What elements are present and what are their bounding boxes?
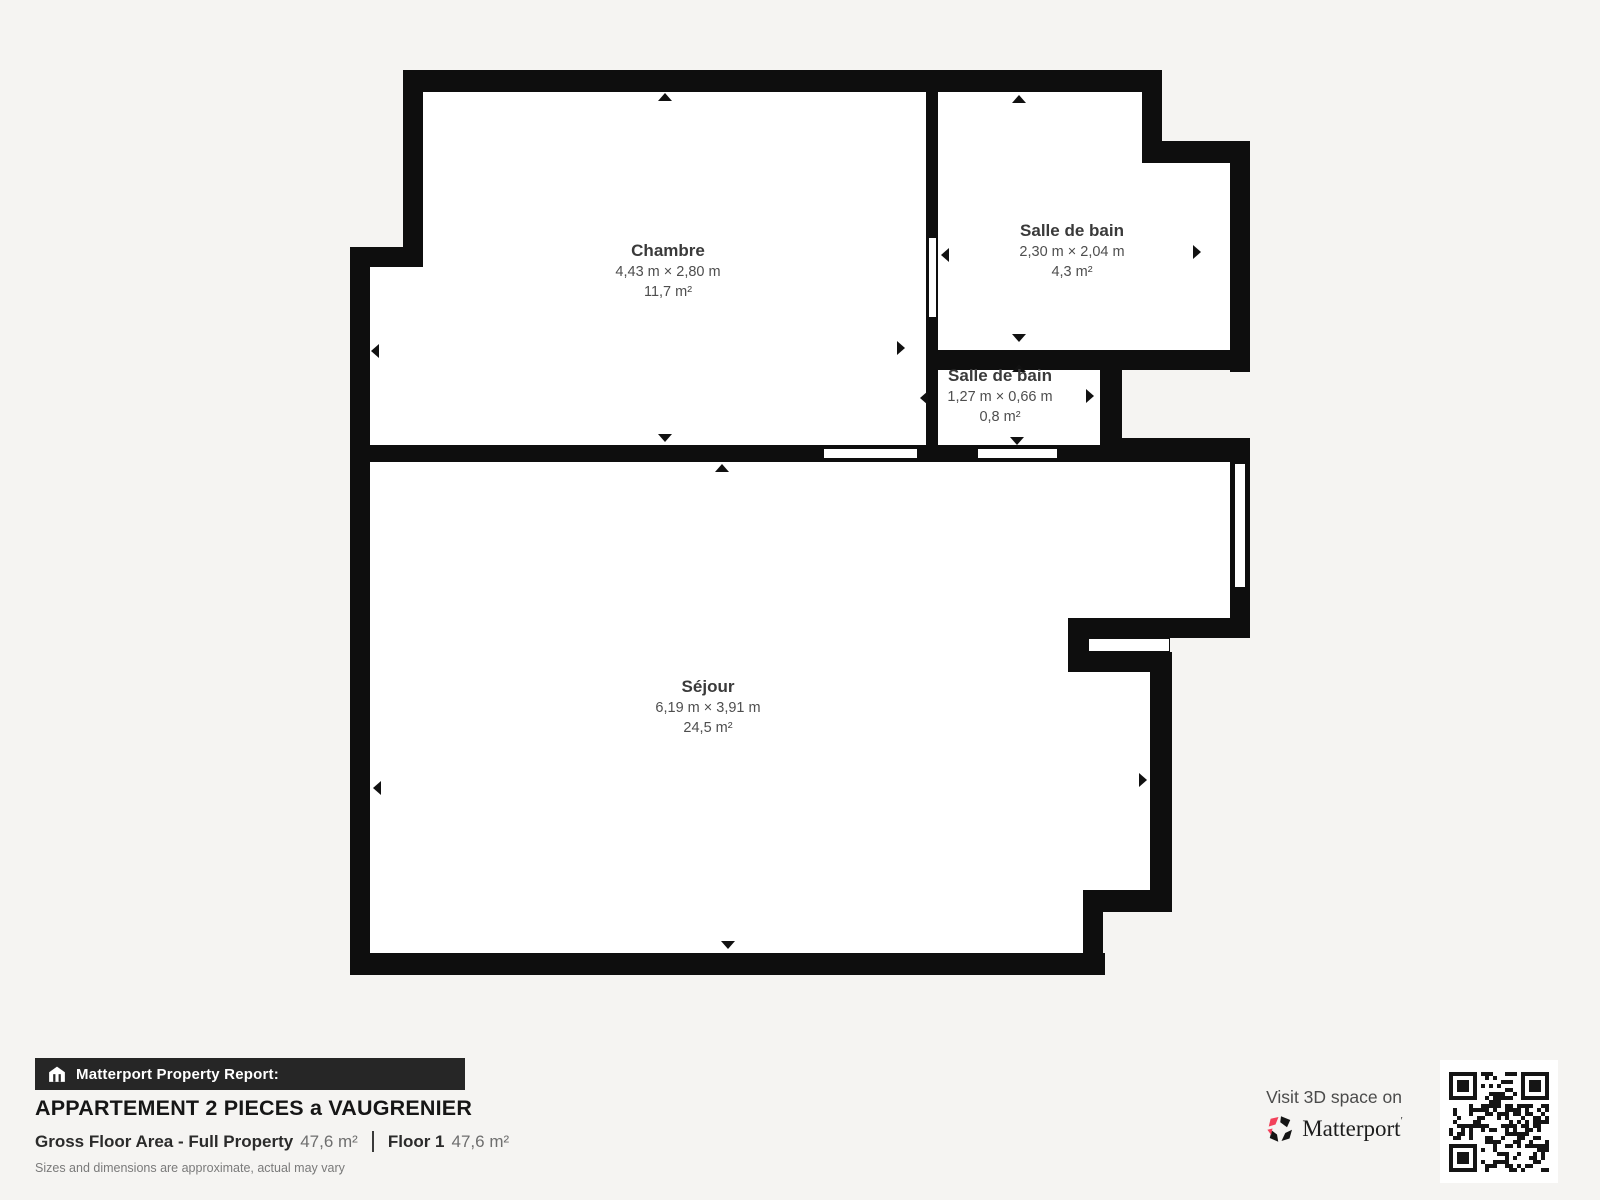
room-label-sejour: Séjour 6,19 m × 3,91 m 24,5 m²	[558, 676, 858, 738]
wall-segment	[1150, 652, 1172, 892]
qr-code	[1440, 1060, 1558, 1183]
divider	[372, 1131, 374, 1152]
wall-segment	[1230, 141, 1250, 372]
wall-arrow-icon	[373, 781, 381, 795]
room-dimensions: 1,27 m × 0,66 m	[915, 387, 1085, 407]
visit-3d-link[interactable]: Visit 3D space on Matterportʹ	[1248, 1086, 1420, 1144]
wall-arrow-icon	[371, 344, 379, 358]
wall-arrow-icon	[1086, 389, 1094, 403]
room-name: Salle de bain	[915, 365, 1085, 387]
page-title: APPARTEMENT 2 PIECES a VAUGRENIER	[35, 1096, 472, 1121]
wall-segment	[1083, 890, 1103, 975]
room-fill	[1083, 462, 1150, 890]
room-dimensions: 2,30 m × 2,04 m	[947, 242, 1197, 262]
room-area: 4,3 m²	[947, 262, 1197, 282]
wall-arrow-icon	[897, 341, 905, 355]
wall-segment	[1100, 438, 1250, 462]
wall-arrow-icon	[721, 941, 735, 949]
wall-arrow-icon	[658, 93, 672, 101]
wall-arrow-icon	[658, 434, 672, 442]
wall-arrow-icon	[1012, 334, 1026, 342]
room-label-salle-de-bain-1: Salle de bain 2,30 m × 2,04 m 4,3 m²	[947, 220, 1197, 282]
floor-value: 47,6 m²	[452, 1132, 510, 1152]
report-banner: Matterport Property Report:	[35, 1058, 465, 1090]
room-area: 11,7 m²	[518, 282, 818, 302]
disclaimer-text: Sizes and dimensions are approximate, ac…	[35, 1161, 345, 1175]
area-info-row: Gross Floor Area - Full Property 47,6 m²…	[35, 1131, 509, 1152]
room-label-chambre: Chambre 4,43 m × 2,80 m 11,7 m²	[518, 240, 818, 302]
floor-plan: Chambre 4,43 m × 2,80 m 11,7 m² Salle de…	[0, 0, 1600, 1200]
wall-arrow-icon	[1139, 773, 1147, 787]
wall-segment	[350, 247, 370, 975]
window	[1088, 638, 1170, 652]
room-name: Chambre	[518, 240, 818, 262]
matterport-logo-icon	[1265, 1114, 1295, 1144]
room-name: Salle de bain	[947, 220, 1197, 242]
room-dimensions: 6,19 m × 3,91 m	[558, 698, 858, 718]
house-icon	[48, 1066, 66, 1083]
wall-arrow-icon	[715, 464, 729, 472]
banner-label: Matterport Property Report:	[76, 1066, 279, 1083]
room-dimensions: 4,43 m × 2,80 m	[518, 262, 818, 282]
wall-segment	[403, 70, 1162, 92]
gross-floor-area-label: Gross Floor Area - Full Property	[35, 1132, 293, 1152]
wall-arrow-icon	[1012, 95, 1026, 103]
room-label-salle-de-bain-2: Salle de bain 1,27 m × 0,66 m 0,8 m²	[915, 365, 1085, 427]
room-fill	[1150, 460, 1230, 618]
window	[1234, 463, 1246, 588]
visit-text: Visit 3D space on	[1248, 1086, 1420, 1108]
room-area: 24,5 m²	[558, 718, 858, 738]
door-opening	[977, 448, 1058, 459]
room-area: 0,8 m²	[915, 407, 1085, 427]
trademark-tick: ʹ	[1401, 1116, 1403, 1127]
wall-segment	[1068, 618, 1250, 638]
room-name: Séjour	[558, 676, 858, 698]
wall-segment	[350, 953, 1105, 975]
wall-segment	[403, 70, 423, 267]
door-opening	[928, 237, 937, 318]
floor-label: Floor 1	[388, 1132, 445, 1152]
gross-floor-area-value: 47,6 m²	[300, 1132, 358, 1152]
wall-arrow-icon	[1010, 437, 1024, 445]
matterport-wordmark: Matterportʹ	[1302, 1116, 1403, 1142]
door-opening	[823, 448, 918, 459]
